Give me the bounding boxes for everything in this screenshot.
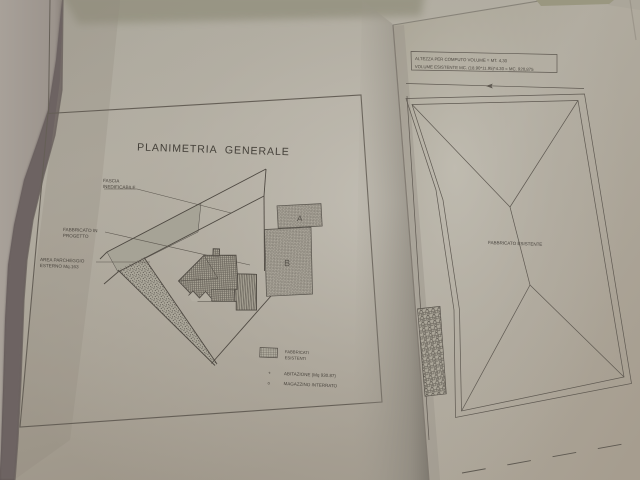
svg-text:PROGETTO: PROGETTO (63, 233, 89, 239)
svg-text:A: A (297, 214, 303, 223)
svg-text:FABBRICATI: FABBRICATI (285, 349, 309, 355)
svg-text:B: B (284, 258, 290, 268)
svg-text:ESISTENTI: ESISTENTI (285, 355, 307, 361)
svg-text:FASCIA: FASCIA (103, 178, 120, 184)
